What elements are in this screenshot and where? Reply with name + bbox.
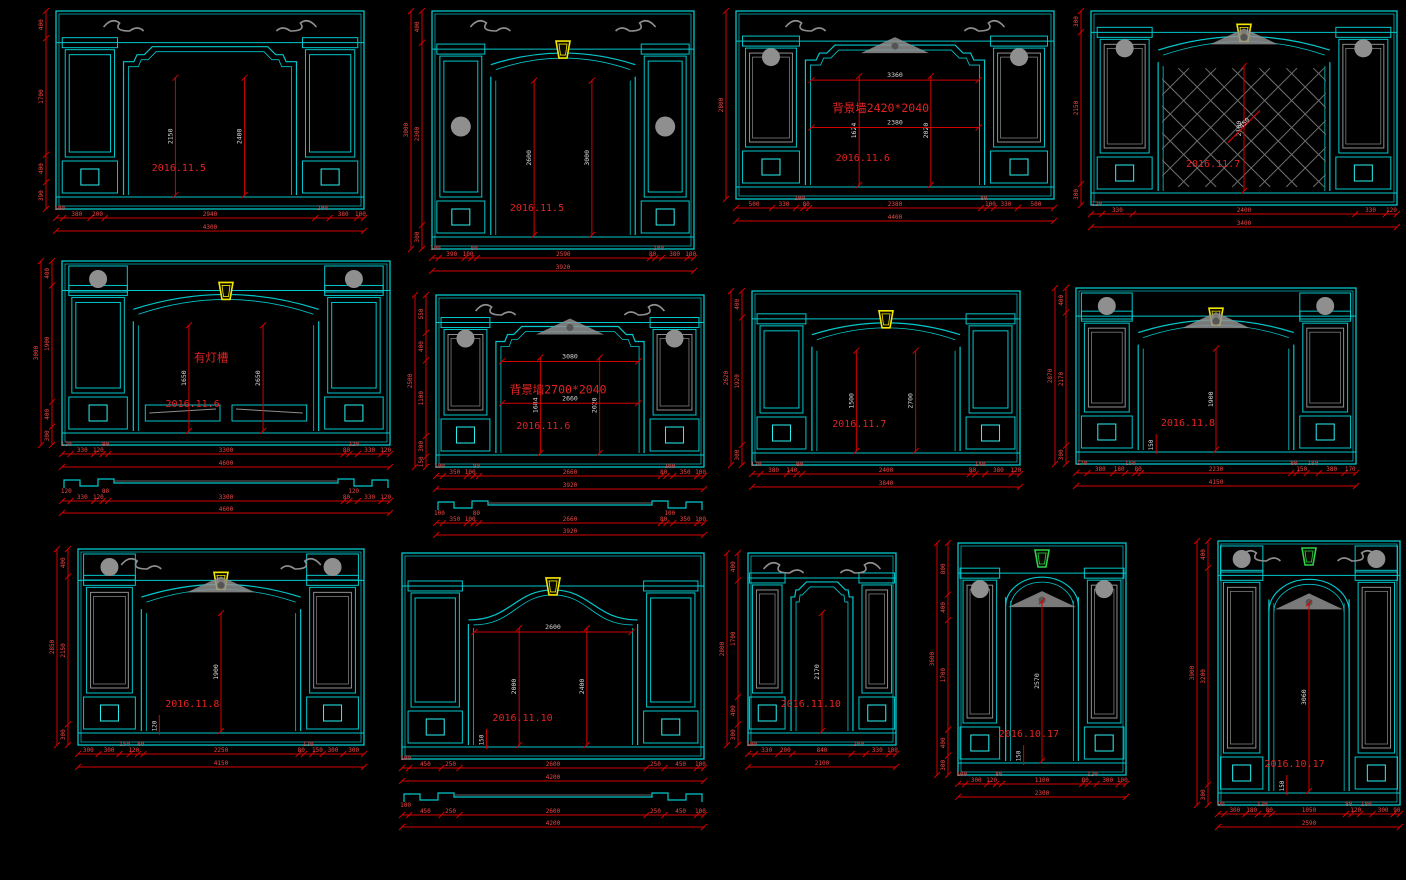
dimension-label: 150: [418, 456, 425, 467]
dimension-label: 80: [660, 516, 668, 523]
medallion-ornament: [100, 558, 118, 576]
medallion-ornament: [1116, 39, 1134, 57]
dimension-label: 300: [328, 747, 339, 754]
scroll-ornament: [764, 563, 804, 573]
medallion-ornament: [89, 270, 107, 288]
dimension-label: 120: [1350, 807, 1361, 814]
cad-drawing-d6: 1003501008026608010035010039205504001100…: [398, 292, 710, 550]
dimension-label: 2870: [1047, 368, 1054, 383]
dimension-label: 100: [465, 516, 476, 523]
scroll-ornament: [964, 21, 1004, 31]
dimension-label: 180: [1246, 807, 1257, 814]
dimension-label: 330: [77, 447, 88, 454]
dimension-label: 120: [380, 494, 391, 501]
medallion-ornament: [1354, 39, 1372, 57]
dimension-label: 90: [1393, 807, 1401, 814]
dimension-label: 400: [44, 267, 51, 278]
dimension-label: 100: [695, 808, 706, 815]
dimension-label: 1700: [940, 668, 947, 683]
dimension-label: 200: [92, 211, 103, 218]
dimension-label: 350: [680, 516, 691, 523]
dimension-label: 100: [695, 761, 706, 768]
dimension-label: 80: [343, 447, 351, 454]
dimension-label: 2600: [546, 761, 561, 768]
dimension-label: 3920: [556, 264, 571, 271]
dimension-label: 330: [364, 447, 375, 454]
dimension-label: 4600: [219, 460, 234, 467]
cad-drawing-d7: 1203801408024008014038012038404001920300…: [714, 288, 1026, 512]
dimension-label: 380: [1326, 466, 1337, 473]
dimension-label: 2400: [578, 679, 586, 695]
dimension-label: 80: [473, 463, 481, 470]
dimension-label: 400: [38, 163, 45, 174]
dimension-label: 100: [685, 251, 696, 258]
scroll-ornament: [121, 559, 161, 569]
dimension-label: 100: [664, 510, 675, 517]
dimension-label: 2300: [1035, 790, 1050, 797]
dimension-label: 2600: [545, 623, 561, 631]
dimension-label: 100: [887, 747, 898, 754]
dimension-label: 80: [1266, 807, 1274, 814]
dimension-label: 3900: [1189, 665, 1196, 680]
dimension-label: 300: [1200, 789, 1207, 800]
dimension-label: 3000: [403, 122, 410, 137]
dimension-label: 250: [445, 808, 456, 815]
dimension-label: 2300: [414, 126, 421, 141]
dimension-label: 3080: [562, 353, 578, 361]
dimension-label: 400: [418, 341, 425, 352]
dimension-label: 300: [60, 729, 67, 740]
dimension-label: 2800: [718, 97, 725, 112]
date-label: 2016.11.8: [165, 699, 219, 710]
dimension-label: 2590: [556, 251, 571, 258]
dimension-label: 350: [449, 516, 460, 523]
dimension-label: 300: [730, 729, 737, 740]
dimension-label: 4300: [203, 224, 218, 231]
dimension-label: 380: [1095, 466, 1106, 473]
scroll-ornament: [281, 559, 321, 569]
dimension-label: 2600: [546, 808, 561, 815]
dimension-label: 390: [446, 251, 457, 258]
dimension-label: 3000: [33, 345, 40, 360]
dimension-label: 4400: [888, 214, 903, 221]
dimension-label: 80: [102, 441, 110, 448]
medallion-ornament: [1010, 48, 1028, 66]
dimension-label: 100: [463, 251, 474, 258]
dimension-label: 3300: [219, 447, 234, 454]
dimension-label: 1100: [418, 391, 425, 406]
dimension-label: 2590: [1302, 820, 1317, 827]
dimension-label: 3840: [879, 480, 894, 487]
section-profile: [438, 501, 702, 510]
dimension-label: 2800: [719, 641, 726, 656]
dimension-label: 140: [975, 461, 986, 468]
medallion-ornament: [324, 558, 342, 576]
annotation-label: 背景墙2700*2040: [510, 383, 607, 397]
dimension-label: 80: [660, 469, 668, 476]
cad-drawing-d4: 1203302400330120340030021503002100450201…: [1063, 8, 1403, 252]
dimension-label: 1684: [531, 397, 539, 413]
dimension-label: 2570: [1033, 673, 1041, 689]
dimension-label: 400: [730, 705, 737, 716]
dimension-label: 100: [434, 510, 445, 517]
dimension-label: 200: [853, 741, 864, 748]
dimension-label: 2020: [922, 123, 930, 139]
dimension-label: 1050: [1302, 807, 1317, 814]
keystone-icon: [219, 282, 233, 299]
scroll-ornament: [616, 21, 656, 31]
dimension-label: 150: [1296, 466, 1307, 473]
dimension-label: 100: [653, 245, 664, 252]
dimension-label: 2250: [214, 747, 229, 754]
dimension-label: 550: [418, 308, 425, 319]
date-label: 2016.11.10: [492, 713, 552, 724]
dimension-label: 140: [786, 467, 797, 474]
dimension-label: 2700: [907, 393, 915, 409]
medallion-ornament: [762, 48, 780, 66]
scroll-ornament: [104, 21, 144, 31]
dimension-label: 100: [430, 245, 441, 252]
section-profile: [404, 793, 702, 802]
dimension-label: 380: [993, 467, 1004, 474]
dimension-label: 330: [364, 494, 375, 501]
dimension-label: 80: [969, 467, 977, 474]
dimension-label: 120: [93, 494, 104, 501]
cad-drawing-d2: 1003901008025908010038010039204002300300…: [394, 8, 700, 296]
dimension-label: 200: [317, 205, 328, 212]
dimension-label: 3920: [563, 482, 578, 489]
dimension-label: 840: [817, 747, 828, 754]
medallion-ornament: [971, 580, 989, 598]
scroll-ornament: [476, 305, 516, 315]
dimension-label: 2400: [236, 128, 244, 144]
dimension-label: 2000: [510, 679, 518, 695]
dimension-label: 120: [128, 747, 139, 754]
dimension-label: 4200: [546, 774, 561, 781]
date-label: 2016.11.7: [832, 419, 886, 430]
dimension-label: 100: [465, 469, 476, 476]
dimension-label: 150: [312, 747, 323, 754]
date-label: 2016.11.5: [152, 163, 206, 174]
dimension-label: 380: [338, 211, 349, 218]
annotation-label: 有灯槽: [194, 350, 229, 364]
cad-drawing-d11: 1003302008402003301002100400170040030028…: [710, 550, 902, 792]
dimension-label: 80: [995, 771, 1003, 778]
dimension-label: 80: [473, 510, 481, 517]
dimension-label: 1650: [180, 370, 188, 386]
dimension-label: 80: [1081, 777, 1089, 784]
dimension-label: 3000: [583, 150, 591, 166]
dimension-label: 400: [730, 561, 737, 572]
dimension-label: 3920: [563, 528, 578, 535]
dimension-label: 400: [940, 602, 947, 613]
dimension-label: 120: [986, 777, 997, 784]
dimension-label: 300: [1073, 189, 1080, 200]
dimension-label: 1624: [850, 123, 858, 139]
dimension-label: 250: [445, 761, 456, 768]
scroll-ornament: [840, 563, 880, 573]
dimension-label: 180: [1114, 466, 1125, 473]
cad-drawing-d1: 1003802002940200380100430040017004003902…: [28, 8, 370, 256]
dimension-label: 350: [680, 469, 691, 476]
dimension-label: 2500: [407, 373, 414, 388]
date-label: 2016.11.6: [516, 421, 570, 432]
dimension-label: 100: [695, 516, 706, 523]
dimension-label: 330: [1001, 201, 1012, 208]
dimension-label: 100: [434, 463, 445, 470]
dimension-label: 120: [348, 441, 359, 448]
dimension-label: 100: [956, 771, 967, 778]
dimension-label: 300: [104, 747, 115, 754]
dimension-label: 100: [1117, 777, 1128, 784]
dimension-label: 400: [1058, 294, 1065, 305]
dimension-label: 2170: [1058, 371, 1065, 386]
dimension-label: 1920: [734, 374, 741, 389]
keystone-icon: [879, 311, 893, 328]
dimension-label: 330: [761, 747, 772, 754]
dimension-label: 100: [400, 755, 411, 762]
keystone-icon: [1035, 550, 1049, 567]
dimension-label: 300: [83, 747, 94, 754]
dimension-label: 2230: [1209, 466, 1224, 473]
medallion-ornament: [1367, 550, 1385, 568]
dimension-label: 180: [1361, 801, 1372, 808]
medallion-ornament: [1233, 550, 1251, 568]
dimension-label: 4600: [219, 506, 234, 513]
dimension-label: 120: [151, 720, 158, 731]
dimension-label: 120: [1386, 207, 1397, 214]
dimension-label: 2660: [563, 469, 578, 476]
dimension-label: 2650: [254, 370, 262, 386]
dimension-label: 300: [1229, 807, 1240, 814]
dimension-label: 330: [77, 494, 88, 501]
annotation-label: 背景墙2420*2040: [832, 101, 929, 115]
dimension-label: 300: [1058, 449, 1065, 460]
dimension-label: 2150: [1073, 100, 1080, 115]
date-label: 2016.11.6: [836, 153, 890, 164]
dimension-label: 450: [675, 761, 686, 768]
dimension-label: 80: [649, 251, 657, 258]
scroll-ornament: [470, 21, 510, 31]
dimension-label: 2100: [815, 760, 830, 767]
dimension-label: 4150: [1209, 479, 1224, 486]
medallion-ornament: [345, 270, 363, 288]
dimension-label: 800: [940, 563, 947, 574]
dimension-label: 80: [796, 461, 804, 468]
dimension-label: 250: [650, 761, 661, 768]
dimension-label: 120: [751, 461, 762, 468]
dimension-label: 1700: [38, 89, 45, 104]
dimension-label: 100: [54, 205, 65, 212]
medallion-ornament: [456, 330, 474, 348]
dimension-label: 80: [802, 201, 810, 208]
medallion-ornament: [451, 117, 471, 137]
dimension-label: 200: [780, 747, 791, 754]
scroll-ornament: [624, 305, 664, 315]
section-profile: [64, 479, 388, 488]
dimension-label: 2660: [563, 516, 578, 523]
cad-drawing-d5: 1203301208033008012033012046004001900400…: [24, 258, 396, 528]
dimension-label: 80: [1134, 466, 1142, 473]
date-label: 2016.11.10: [781, 699, 841, 710]
dimension-label: 300: [971, 777, 982, 784]
dimension-label: 330: [1365, 207, 1376, 214]
dimension-label: 2380: [887, 119, 903, 127]
dimension-label: 80: [298, 747, 306, 754]
dimension-label: 330: [1112, 207, 1123, 214]
dimension-label: 150: [478, 734, 485, 745]
dimension-label: 300: [940, 760, 947, 771]
cad-drawing-d12: 1003001208011008012030010023008004001700…: [920, 540, 1132, 822]
dimension-label: 2380: [888, 201, 903, 208]
dimension-label: 400: [44, 409, 51, 420]
scroll-ornament: [786, 21, 826, 31]
dimension-label: 1500: [847, 393, 855, 409]
dimension-label: 80: [102, 488, 110, 495]
dimension-label: 400: [940, 737, 947, 748]
dimension-label: 3060: [1300, 689, 1308, 705]
medallion-ornament: [1098, 297, 1116, 315]
cad-drawing-d9: 3003001501208022508012015030030041504002…: [40, 546, 370, 792]
dimension-label: 300: [1378, 807, 1389, 814]
dimension-label: 100: [355, 211, 366, 218]
dimension-label: 120: [61, 441, 72, 448]
dimension-label: 300: [44, 430, 51, 441]
dimension-label: 380: [768, 467, 779, 474]
dimension-label: 250: [650, 808, 661, 815]
dimension-label: 330: [872, 747, 883, 754]
date-label: 2016.11.5: [510, 203, 564, 214]
dimension-label: 3600: [929, 651, 936, 666]
dimension-label: 120: [1091, 201, 1102, 208]
dimension-label: 390: [38, 190, 45, 201]
cad-drawing-d13: 9030018012080105080120180300902590400320…: [1180, 538, 1406, 852]
dimension-label: 300: [734, 449, 741, 460]
medallion-ornament: [1095, 580, 1113, 598]
dimension-label: 80: [343, 494, 351, 501]
dimension-label: 100: [746, 741, 757, 748]
dimension-label: 330: [779, 201, 790, 208]
dimension-label: 380: [71, 211, 82, 218]
dimension-label: 500: [1031, 201, 1042, 208]
keystone-icon: [556, 41, 570, 58]
dimension-label: 4150: [214, 760, 229, 767]
keystone-icon: [546, 578, 560, 595]
dimension-label: 4200: [546, 820, 561, 827]
dimension-label: 2940: [203, 211, 218, 218]
dimension-label: 120: [93, 447, 104, 454]
dimension-label: 1900: [1207, 391, 1215, 407]
dimension-label: 400: [734, 298, 741, 309]
dimension-label: 2020: [591, 397, 599, 413]
dimension-label: 1900: [44, 336, 51, 351]
dimension-label: 400: [1200, 549, 1207, 560]
dimension-label: 100: [664, 463, 675, 470]
dimension-label: 150: [1016, 750, 1023, 761]
dimension-label: 350: [449, 469, 460, 476]
dimension-label: 300: [1073, 16, 1080, 27]
medallion-ornament: [1316, 297, 1334, 315]
dimension-label: 300: [414, 231, 421, 242]
dimension-label: 1700: [730, 631, 737, 646]
date-label: 2016.10.17: [1264, 759, 1324, 770]
dimension-label: 450: [675, 808, 686, 815]
dimension-label: 2170: [813, 664, 821, 680]
dimension-label: 100: [695, 469, 706, 476]
dimension-label: 170: [1076, 460, 1087, 467]
dimension-label: 2620: [723, 370, 730, 385]
dimension-label: 3400: [1237, 220, 1252, 227]
dimension-label: 1900: [212, 664, 220, 680]
date-label: 2016.11.8: [1161, 418, 1215, 429]
dimension-label: 2400: [1237, 207, 1252, 214]
dimension-label: 100: [400, 802, 411, 809]
dimension-label: 120: [348, 488, 359, 495]
dimension-label: 120: [1087, 771, 1098, 778]
cad-drawing-d10: 1004502502600250450100420020002400150260…: [388, 550, 710, 842]
dimension-label: 170: [1345, 466, 1356, 473]
dimension-label: 90: [1218, 801, 1226, 808]
dimension-label: 400: [414, 21, 421, 32]
date-label: 2016.11.6: [166, 399, 220, 410]
cad-drawing-d8: 1703801801508022308015018038017041504002…: [1038, 285, 1362, 511]
dimension-label: 300: [348, 747, 359, 754]
dimension-label: 2850: [49, 639, 56, 654]
dimension-label: 2600: [525, 150, 533, 166]
dimension-label: 400: [60, 557, 67, 568]
dimension-label: 120: [380, 447, 391, 454]
dimension-label: 2400: [879, 467, 894, 474]
scroll-ornament: [276, 21, 316, 31]
dimension-label: 150: [1148, 439, 1155, 450]
cad-drawing-d3: 5003301008023808010033050044002800162420…: [708, 8, 1060, 246]
keystone-icon: [1302, 548, 1316, 565]
medallion-ornament: [666, 330, 684, 348]
dimension-label: 300: [1102, 777, 1113, 784]
dimension-label: 80: [470, 245, 478, 252]
date-label: 2016.10.17: [999, 729, 1059, 740]
dimension-label: 180: [1307, 460, 1318, 467]
dimension-label: 450: [420, 761, 431, 768]
dimension-label: 3300: [219, 494, 234, 501]
dimension-label: 2150: [166, 128, 174, 144]
medallion-ornament: [655, 117, 675, 137]
dimension-label: 400: [38, 19, 45, 30]
dimension-label: 3200: [1200, 669, 1207, 684]
dimension-label: 380: [669, 251, 680, 258]
dimension-label: 450: [420, 808, 431, 815]
dimension-label: 120: [61, 488, 72, 495]
dimension-label: 100: [985, 201, 996, 208]
dimension-label: 120: [1010, 467, 1021, 474]
dimension-label: 500: [749, 201, 760, 208]
dimension-label: 1100: [1035, 777, 1050, 784]
dimension-label: 3360: [887, 71, 903, 79]
date-label: 2016.11.7: [1186, 159, 1240, 170]
dimension-label: 80: [137, 741, 145, 748]
dimension-label: 300: [418, 441, 425, 452]
dimension-label: 2150: [60, 643, 67, 658]
cad-canvas[interactable]: 1003802002940200380100430040017004003902…: [0, 0, 1406, 880]
dimension-label: 150: [1279, 780, 1286, 791]
